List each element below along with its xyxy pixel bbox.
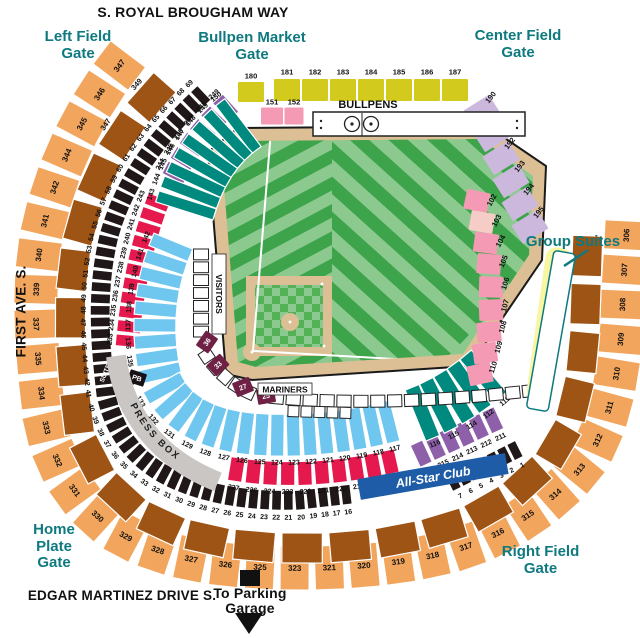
section-label-137: 137 [125, 319, 132, 331]
section-suites-51[interactable] [92, 270, 113, 282]
spot-s182[interactable]: 182 [302, 68, 328, 101]
section-label-211: 211 [494, 432, 507, 443]
section-club-200-brown-13[interactable] [282, 533, 323, 563]
section-label-50: 50 [81, 282, 89, 290]
section-visitors-boxes-0[interactable] [194, 249, 209, 260]
right-field-gate-label: Right Field Gate [478, 544, 603, 577]
section-label-33: 33 [139, 478, 149, 488]
section-label-34: 34 [128, 470, 139, 480]
section-label-226: 226 [245, 486, 257, 494]
section-label-49: 49 [81, 294, 88, 302]
section-mariners-boxes-2-1[interactable] [301, 406, 312, 417]
visitors-dugout: VISITORS [212, 254, 226, 334]
spot-s183[interactable]: 183 [330, 68, 356, 101]
section-club-200-brown-7[interactable] [60, 392, 95, 436]
spot-label-s183: 183 [337, 68, 350, 77]
section-label-30: 30 [174, 496, 184, 505]
left-field-gate-label: Left Field Gate [28, 29, 128, 62]
section-label-26: 26 [223, 509, 232, 517]
section-label-45: 45 [80, 342, 87, 350]
section-label-220: 220 [335, 485, 348, 493]
section-label-23: 23 [260, 514, 268, 521]
section-club-200-brown-12[interactable] [233, 529, 276, 562]
section-label-22: 22 [272, 515, 280, 522]
section-suites-50[interactable] [91, 281, 112, 292]
section-mariners-boxes-2-3[interactable] [327, 407, 338, 418]
section-suites-52[interactable] [93, 258, 114, 271]
spot-label-s184: 184 [365, 68, 378, 77]
section-label-236: 236 [112, 290, 121, 303]
section-label-24: 24 [248, 513, 257, 521]
section-label-136: 136 [124, 337, 132, 349]
section-label-224: 224 [264, 488, 276, 496]
section-label-16: 16 [344, 509, 353, 517]
section-blue-100-123[interactable] [286, 414, 300, 456]
section-label-233: 233 [107, 333, 115, 345]
section-club-200-brown-22[interactable] [570, 283, 601, 324]
section-mariners-boxes-8[interactable] [404, 394, 419, 407]
section-label-308: 308 [618, 297, 628, 311]
section-mariners-boxes-2-0[interactable] [288, 406, 299, 417]
section-label-48: 48 [81, 306, 88, 314]
section-label-337: 337 [31, 317, 40, 331]
section-label-213: 213 [465, 445, 479, 456]
section-blue-100-136[interactable] [134, 333, 177, 349]
spot-s185[interactable]: 185 [386, 68, 412, 101]
section-label-51: 51 [82, 269, 90, 278]
section-label-32: 32 [150, 485, 160, 495]
section-blue-100-137[interactable] [134, 318, 176, 332]
section-label-69: 69 [185, 79, 196, 90]
section-label-237: 237 [114, 275, 123, 288]
section-label-56: 56 [95, 208, 104, 218]
section-label-339: 339 [32, 282, 41, 296]
section-label-68: 68 [176, 87, 187, 98]
mariners-label: MARINERS [262, 384, 308, 394]
section-mariners-boxes-4[interactable] [337, 395, 351, 407]
section-label-323: 323 [288, 564, 302, 573]
section-label-321: 321 [322, 563, 336, 572]
section-label-320: 320 [357, 561, 372, 571]
section-mariners-boxes-2-2[interactable] [314, 406, 325, 417]
section-label-27: 27 [211, 507, 220, 515]
section-club-200-brown-14[interactable] [329, 529, 372, 562]
section-label-335: 335 [33, 352, 43, 367]
spot-label-s109: 109 [492, 340, 504, 354]
section-label-41: 41 [84, 390, 92, 399]
section-label-53: 53 [86, 245, 94, 254]
center-field-gate-label: Center Field Gate [458, 28, 578, 61]
spot-label-s152: 152 [288, 98, 301, 107]
section-mariners-boxes-2[interactable] [303, 394, 318, 407]
section-label-54: 54 [88, 233, 97, 242]
section-label-239: 239 [119, 246, 129, 259]
spot-label-s182: 182 [309, 68, 322, 77]
spot-label-s151: 151 [266, 98, 279, 107]
section-visitors-boxes-4[interactable] [194, 301, 209, 312]
section-label-122: 122 [305, 458, 317, 466]
spot-label-s180: 180 [245, 72, 258, 81]
section-label-340: 340 [34, 247, 45, 262]
bullpens-label: BULLPENS [338, 99, 397, 111]
section-mariners-boxes-14[interactable] [505, 386, 520, 399]
section-club-200-brown-21[interactable] [566, 331, 600, 374]
section-label-129: 129 [180, 440, 194, 452]
section-label-4: 4 [488, 477, 495, 485]
section-blue-100-122[interactable] [301, 413, 317, 456]
section-blue-100-124[interactable] [270, 414, 284, 456]
street-first-ave: FIRST AVE. S. [15, 251, 30, 371]
section-mariners-boxes-10[interactable] [438, 392, 453, 405]
section-blue-100-138[interactable] [134, 301, 177, 318]
section-mariners-boxes-7[interactable] [387, 395, 402, 407]
spot-label-s185: 185 [393, 68, 406, 77]
section-label-31: 31 [162, 491, 172, 501]
spot-label-s181: 181 [281, 68, 294, 77]
section-label-234: 234 [108, 319, 116, 331]
mariners-dugout: MARINERS [258, 383, 312, 395]
section-label-235: 235 [110, 304, 118, 317]
home-plate-gate-label: Home Plate Gate [4, 522, 104, 572]
section-label-326: 326 [218, 559, 233, 570]
spot-label-s187: 187 [449, 68, 462, 77]
street-edgar-martinez: EDGAR MARTINEZ DRIVE S. [22, 589, 222, 604]
spot-label-s107: 107 [499, 298, 511, 312]
section-label-7: 7 [457, 493, 464, 501]
section-label-138: 138 [126, 301, 134, 313]
section-visitors-boxes-1[interactable] [194, 262, 209, 273]
section-label-223: 223 [282, 489, 294, 496]
section-club-200-brown-10[interactable] [136, 501, 185, 545]
section-label-221: 221 [317, 487, 329, 495]
spot-s184[interactable]: 184 [358, 68, 384, 101]
section-label-334: 334 [36, 386, 47, 401]
stadium-seat-map: 3473463453443423413403393373353343333323… [0, 0, 640, 638]
section-label-222: 222 [300, 489, 312, 496]
parking-arrow-down-icon [235, 613, 263, 634]
section-visitors-boxes-2[interactable] [194, 275, 209, 286]
section-label-307: 307 [620, 262, 630, 276]
section-label-121: 121 [322, 457, 334, 465]
spot-label-s108: 108 [497, 320, 509, 334]
section-label-44: 44 [80, 354, 88, 362]
section-label-64: 64 [143, 123, 153, 134]
section-label-25: 25 [235, 511, 244, 519]
section-mariners-boxes-6[interactable] [371, 395, 385, 407]
section-label-46: 46 [79, 330, 86, 338]
section-mariners-boxes-11[interactable] [455, 391, 470, 404]
section-label-6: 6 [468, 487, 475, 495]
spot-s181[interactable]: 181 [274, 68, 300, 101]
section-visitors-boxes-3[interactable] [194, 288, 209, 299]
section-mariners-boxes-5[interactable] [354, 395, 368, 407]
section-label-128: 128 [199, 448, 212, 458]
section-visitors-boxes-5[interactable] [194, 313, 209, 324]
section-mariners-boxes-12[interactable] [472, 389, 487, 402]
section-blue-100-125[interactable] [253, 413, 269, 456]
section-label-124: 124 [271, 460, 283, 467]
section-mariners-boxes-9[interactable] [421, 393, 436, 406]
section-label-42: 42 [83, 378, 91, 387]
section-label-21: 21 [284, 515, 292, 522]
group-suites-label: Group Suites [508, 234, 638, 251]
section-suites-49[interactable] [90, 293, 110, 304]
section-label-117: 117 [389, 444, 402, 454]
section-suites-47[interactable] [90, 317, 110, 327]
section-label-57: 57 [99, 197, 108, 207]
section-label-126: 126 [236, 457, 249, 465]
bullpen-market-gate-label: Bullpen Market Gate [182, 30, 322, 63]
spot-label-s186: 186 [421, 68, 434, 77]
section-label-52: 52 [84, 257, 92, 266]
section-label-29: 29 [186, 500, 196, 509]
section-label-125: 125 [254, 459, 266, 467]
section-label-238: 238 [117, 261, 126, 274]
section-label-19: 19 [309, 513, 318, 521]
section-label-20: 20 [297, 514, 305, 522]
section-label-212: 212 [480, 438, 494, 449]
spot-s151[interactable]: 151 [261, 98, 283, 125]
section-label-43: 43 [81, 366, 89, 375]
section-label-28: 28 [198, 504, 207, 513]
street-royal-brougham: S. ROYAL BROUGHAM WAY [43, 5, 343, 20]
section-label-127: 127 [217, 453, 230, 462]
spot-s152[interactable]: 152 [285, 98, 304, 125]
section-label-144: 144 [152, 173, 163, 187]
section-label-5: 5 [478, 482, 485, 490]
section-mariners-boxes-2-4[interactable] [340, 407, 351, 418]
spot-s187[interactable]: 187 [442, 68, 468, 101]
section-label-17: 17 [332, 510, 341, 518]
spot-s107[interactable]: 107 [479, 298, 512, 321]
parking-arrow-shaft [240, 570, 260, 586]
visitors-label: VISITORS [214, 274, 224, 314]
section-label-36: 36 [109, 450, 119, 461]
section-suites-48[interactable] [90, 305, 110, 315]
spot-s186[interactable]: 186 [414, 68, 440, 101]
section-club-200-brown-15[interactable] [375, 521, 420, 558]
spot-s180[interactable]: 180 [238, 72, 264, 102]
section-label-47: 47 [79, 318, 86, 326]
section-mariners-boxes-3[interactable] [320, 394, 335, 406]
baseball-field [208, 126, 560, 420]
section-mariners-boxes-13[interactable] [488, 388, 503, 401]
section-label-18: 18 [321, 511, 330, 519]
section-label-309: 309 [616, 332, 626, 347]
section-label-123: 123 [288, 459, 300, 466]
section-label-35: 35 [118, 461, 129, 472]
